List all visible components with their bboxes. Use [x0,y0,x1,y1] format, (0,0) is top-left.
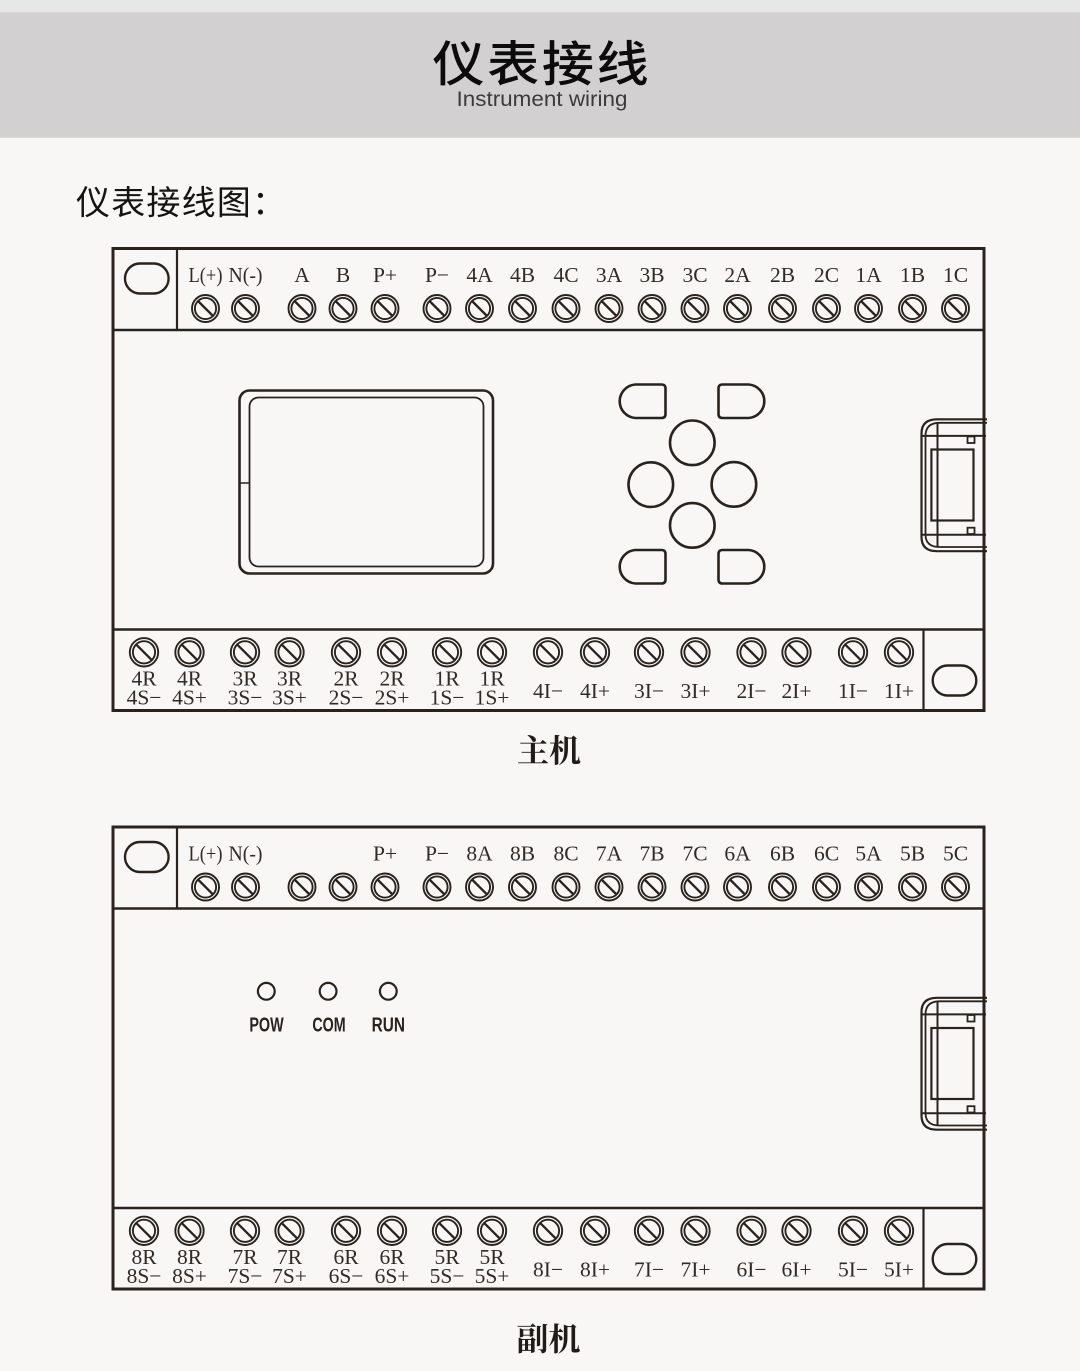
svg-text:8S+: 8S+ [172,1264,207,1288]
svg-text:6B: 6B [770,842,795,866]
svg-text:4B: 4B [510,263,535,287]
svg-text:COM: COM [312,1015,345,1037]
svg-text:2C: 2C [814,263,839,287]
svg-text:8B: 8B [510,842,535,866]
svg-text:L(+): L(+) [189,842,223,866]
svg-text:6I−: 6I− [736,1258,766,1282]
svg-text:Instrument wiring: Instrument wiring [457,88,628,111]
svg-text:3C: 3C [682,263,707,287]
svg-text:4C: 4C [553,263,578,287]
svg-text:4I−: 4I− [533,679,563,703]
svg-text:5C: 5C [943,842,968,866]
svg-text:3S+: 3S+ [272,686,307,710]
svg-text:6C: 6C [814,842,839,866]
svg-text:7B: 7B [639,842,664,866]
svg-text:3B: 3B [639,263,664,287]
svg-text:7S+: 7S+ [272,1264,307,1288]
svg-text:7C: 7C [682,842,707,866]
svg-text:8C: 8C [553,842,578,866]
svg-text:2B: 2B [770,263,795,287]
svg-text:P−: P− [425,842,449,866]
svg-text:1S−: 1S− [430,686,465,710]
svg-text:N(-): N(-) [229,263,263,287]
svg-text:6I+: 6I+ [781,1258,811,1282]
svg-text:N(-): N(-) [229,842,263,866]
svg-text:1A: 1A [855,263,882,287]
svg-text:4S+: 4S+ [172,686,207,710]
svg-text:2S−: 2S− [329,686,364,710]
svg-text:2S+: 2S+ [375,686,410,710]
svg-text:5I+: 5I+ [884,1258,914,1282]
svg-text:6S+: 6S+ [375,1264,410,1288]
svg-text:8S−: 8S− [127,1264,162,1288]
svg-text:1C: 1C [943,263,968,287]
svg-text:3I−: 3I− [634,679,664,703]
svg-text:3S−: 3S− [228,686,263,710]
svg-text:P+: P+ [373,263,397,287]
svg-text:4A: 4A [466,263,493,287]
svg-text:5B: 5B [900,842,925,866]
svg-text:2I+: 2I+ [781,679,811,703]
svg-text:3I+: 3I+ [680,679,710,703]
svg-text:6S−: 6S− [329,1264,364,1288]
svg-text:B: B [336,263,350,287]
svg-text:8I−: 8I− [533,1258,563,1282]
svg-text:4I+: 4I+ [580,679,610,703]
svg-text:2A: 2A [724,263,751,287]
svg-text:7I−: 7I− [634,1258,664,1282]
svg-text:L(+): L(+) [189,263,223,287]
svg-text:3A: 3A [596,263,623,287]
svg-text:4S−: 4S− [127,686,162,710]
svg-text:1B: 1B [900,263,925,287]
svg-text:A: A [294,263,310,287]
svg-text:5S+: 5S+ [475,1264,510,1288]
svg-text:8I+: 8I+ [580,1258,610,1282]
svg-text:1S+: 1S+ [475,686,510,710]
svg-text:8A: 8A [466,842,493,866]
svg-text:6A: 6A [724,842,751,866]
svg-text:7A: 7A [596,842,623,866]
svg-text:POW: POW [249,1015,284,1037]
svg-text:P+: P+ [373,842,397,866]
svg-text:RUN: RUN [372,1015,405,1037]
svg-text:5I−: 5I− [838,1258,868,1282]
svg-text:1I+: 1I+ [884,679,914,703]
svg-text:5S−: 5S− [430,1264,465,1288]
svg-text:5A: 5A [855,842,882,866]
svg-text:P−: P− [425,263,449,287]
svg-text:1I−: 1I− [838,679,868,703]
svg-text:7S−: 7S− [228,1264,263,1288]
svg-text:7I+: 7I+ [680,1258,710,1282]
svg-text:2I−: 2I− [736,679,766,703]
